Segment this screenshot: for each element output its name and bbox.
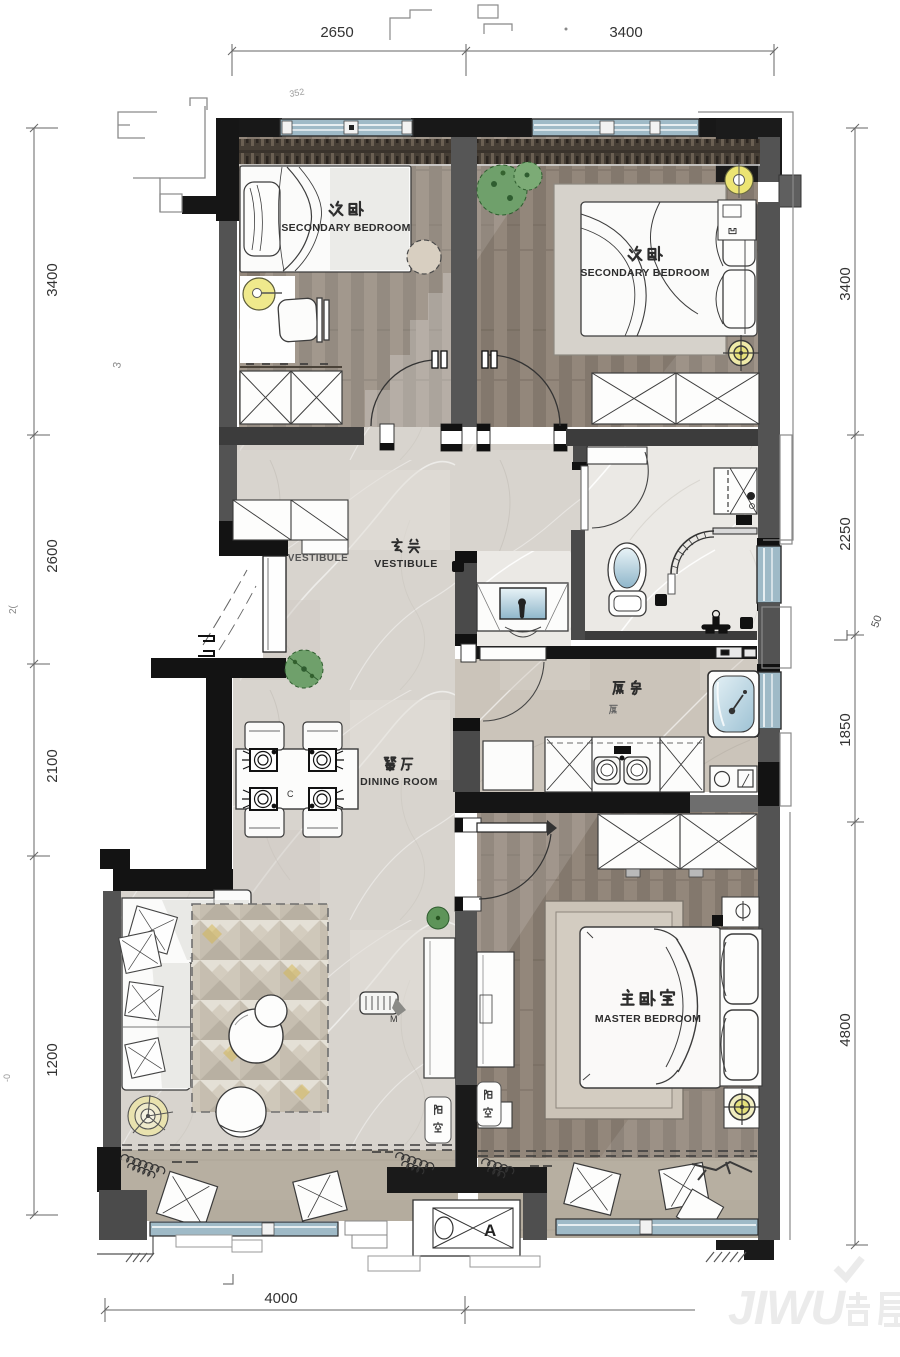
svg-text:VESTIBULE: VESTIBULE	[288, 553, 349, 564]
svg-text:SECONDARY BEDROOM: SECONDARY BEDROOM	[580, 267, 709, 279]
svg-text:1200: 1200	[44, 1043, 61, 1076]
svg-text:SECONDARY BEDROOM: SECONDARY BEDROOM	[281, 222, 410, 234]
svg-text:3400: 3400	[609, 24, 642, 41]
svg-text:4800: 4800	[837, 1013, 854, 1046]
svg-text:A: A	[484, 1221, 496, 1240]
svg-text:C: C	[287, 789, 294, 799]
svg-text:DINING ROOM: DINING ROOM	[360, 776, 438, 788]
svg-text:JIWU: JIWU	[728, 1282, 846, 1335]
svg-text:3400: 3400	[837, 267, 854, 300]
svg-text:2250: 2250	[837, 517, 854, 550]
svg-text:MASTER BEDROOM: MASTER BEDROOM	[595, 1013, 701, 1025]
svg-text:2600: 2600	[44, 539, 61, 572]
svg-text:2(: 2(	[8, 604, 19, 614]
svg-text:2100: 2100	[44, 749, 61, 782]
svg-text:VESTIBULE: VESTIBULE	[374, 558, 437, 570]
svg-text:-0: -0	[2, 1074, 12, 1082]
svg-text:4000: 4000	[264, 1290, 297, 1307]
svg-text:M: M	[390, 1014, 398, 1024]
svg-text:3400: 3400	[44, 263, 61, 296]
svg-text:2650: 2650	[320, 24, 353, 41]
svg-text:1850: 1850	[837, 713, 854, 746]
